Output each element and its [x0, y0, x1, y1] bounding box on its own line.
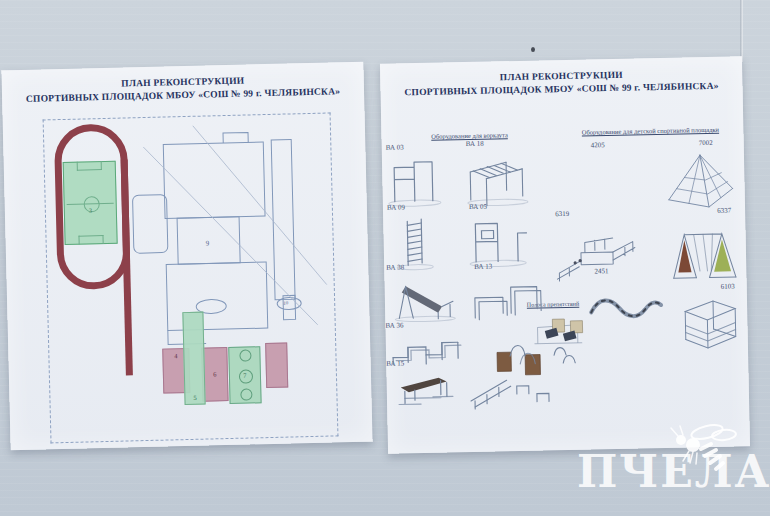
poster-title: ПЛАН РЕКОНСТРУКЦИИ СПОРТИВНЫХ ПЛОЩАДОК М…: [2, 72, 365, 107]
room-number: 10: [283, 301, 288, 306]
section-heading-workout: Оборудование для воркаута: [399, 131, 539, 141]
building-number: 9: [206, 239, 210, 247]
bridge-platform-drawing: [548, 221, 644, 293]
climbing-frame-swing-drawing: [661, 216, 742, 290]
item-code: 7002: [688, 139, 724, 148]
item-code: ВА 03: [386, 143, 404, 151]
court-number: 7: [230, 371, 260, 379]
bee-icon: [645, 418, 750, 476]
wall-ladder-drawing: [387, 213, 443, 274]
goal-box-top: [76, 161, 102, 171]
section-heading-kids-playground: Оборудование для детской спортивной площ…: [559, 125, 741, 136]
basketball-court: 7: [228, 346, 261, 404]
incline-board-drawing: [384, 272, 460, 324]
climbing-net-pyramid-drawing: [658, 148, 739, 212]
wall-photo: ПЛАН РЕКОНСТРУКЦИИ СПОРТИВНЫХ ПЛОЩАДОК М…: [0, 0, 770, 516]
snake-balance-beam-drawing: [585, 291, 666, 328]
cube-climbing-frame-drawing: [673, 294, 744, 355]
equipment-catalog-poster-right: ПЛАН РЕКОНСТРУКЦИИ СПОРТИВНЫХ ПЛОЩАДОК М…: [380, 56, 750, 453]
football-field: 3: [63, 161, 118, 245]
poster-title: ПЛАН РЕКОНСТРУКЦИИ СПОРТИВНЫХ ПЛОЩАДОК М…: [380, 66, 742, 100]
item-code: 6319: [555, 210, 569, 218]
pullup-bars-drawing: [384, 152, 450, 208]
zigzag-bars-drawing: [388, 328, 464, 370]
key-circle-bottom: [240, 388, 252, 400]
obstacle-course-drawing: [465, 314, 597, 417]
court-number: 5: [185, 394, 204, 401]
key-circle-top: [239, 349, 251, 361]
item-code: 4205: [580, 141, 616, 150]
court-pink-right: [265, 343, 288, 389]
field-number: 3: [65, 206, 116, 213]
pullup-station-drawing: [463, 211, 534, 270]
reconstruction-plan-poster-left: ПЛАН РЕКОНСТРУКЦИИ СПОРТИВНЫХ ПЛОЩАДОК М…: [1, 62, 372, 451]
wall-seam: [740, 0, 743, 62]
abs-bench-drawing: [388, 366, 459, 412]
court-number: 6: [203, 370, 227, 378]
monkey-bars-drawing: [460, 147, 536, 209]
court-green-strip: 5: [182, 312, 205, 405]
goal-box-bottom: [78, 235, 104, 245]
wall-speck: [531, 47, 535, 52]
